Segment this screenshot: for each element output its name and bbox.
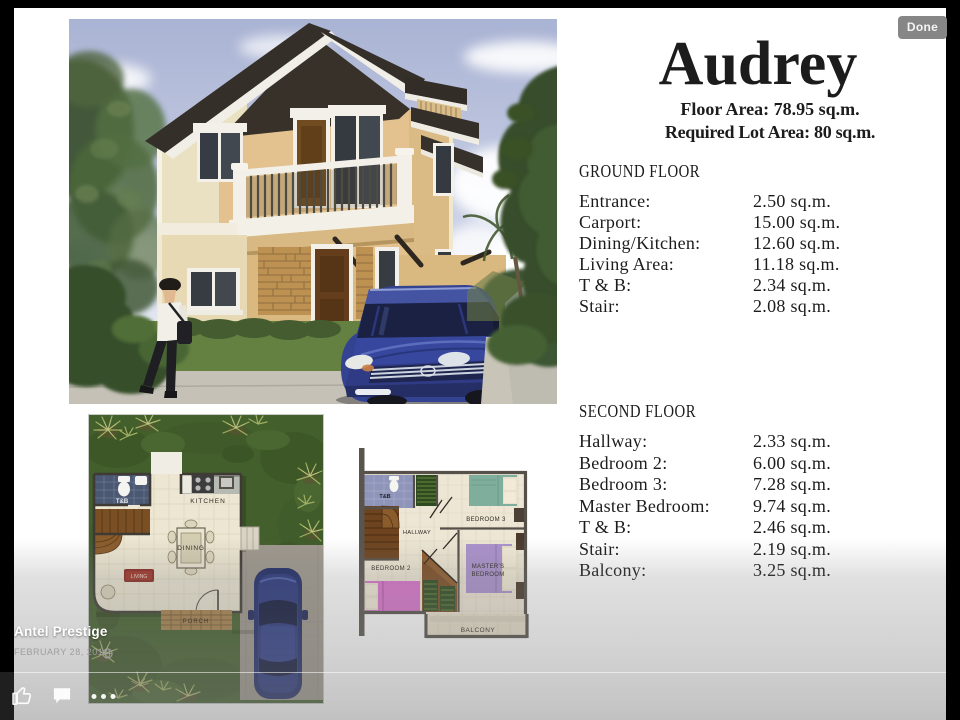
svg-text:LIVING: LIVING bbox=[131, 574, 148, 580]
svg-text:T&B: T&B bbox=[379, 494, 390, 500]
svg-text:HALLWAY: HALLWAY bbox=[403, 530, 431, 536]
svg-text:BEDROOM: BEDROOM bbox=[471, 572, 504, 578]
svg-text:MASTER'S: MASTER'S bbox=[472, 564, 505, 570]
svg-text:PORCH: PORCH bbox=[183, 619, 210, 625]
svg-text:BALCONY: BALCONY bbox=[461, 627, 496, 634]
svg-text:DINING: DINING bbox=[177, 545, 205, 552]
svg-text:KITCHEN: KITCHEN bbox=[190, 498, 226, 505]
svg-text:BEDROOM 2: BEDROOM 2 bbox=[371, 566, 411, 572]
svg-text:BEDROOM 3: BEDROOM 3 bbox=[466, 517, 506, 523]
